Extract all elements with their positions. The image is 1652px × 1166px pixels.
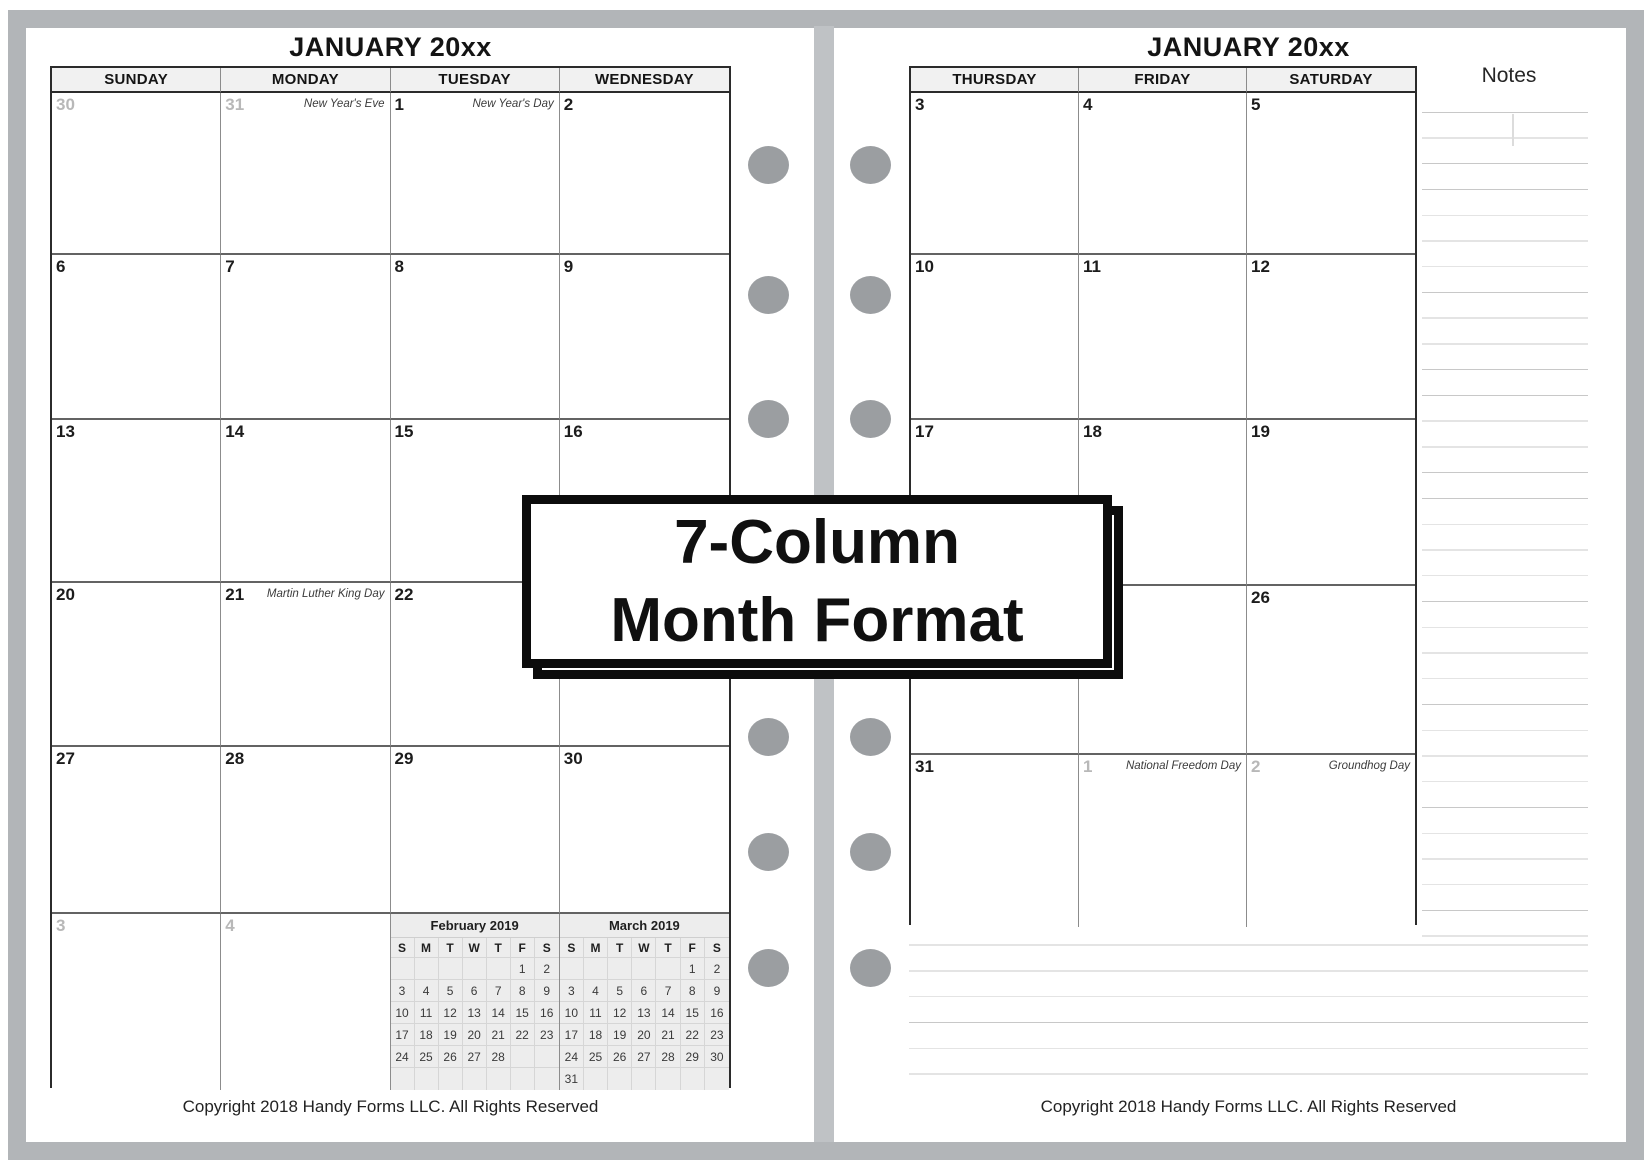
day-cell: 9 xyxy=(560,255,729,420)
mini-date: 21 xyxy=(656,1024,680,1046)
mini-date: 15 xyxy=(681,1002,705,1024)
banner-line-1: 7-Column xyxy=(674,504,960,582)
date-number: 10 xyxy=(915,257,934,277)
day-cell: 13 xyxy=(52,420,221,583)
day-cell: 31New Year's Eve xyxy=(221,93,390,255)
left-month-title: JANUARY 20xx xyxy=(50,32,731,63)
day-cell: 4 xyxy=(221,914,390,1090)
mini-date xyxy=(439,1068,463,1090)
date-number: 30 xyxy=(56,95,75,115)
mini-date: 24 xyxy=(391,1046,415,1068)
date-number: 19 xyxy=(1251,422,1270,442)
mini-date: 26 xyxy=(608,1046,632,1068)
day-header: TUESDAY xyxy=(391,68,560,93)
mini-date: 25 xyxy=(415,1046,439,1068)
date-number: 7 xyxy=(225,257,234,277)
binder-hole xyxy=(748,718,789,756)
notes-ruled-lines xyxy=(1422,87,1588,937)
day-cell: 8 xyxy=(391,255,560,420)
mini-day-header: S xyxy=(391,938,415,958)
mini-date: 11 xyxy=(415,1002,439,1024)
format-banner: 7-Column Month Format xyxy=(522,495,1112,668)
mini-date: 7 xyxy=(487,980,511,1002)
banner-line-2: Month Format xyxy=(610,582,1023,660)
mini-date xyxy=(511,1046,535,1068)
day-cell: 14 xyxy=(221,420,390,583)
date-number: 26 xyxy=(1251,588,1270,608)
day-cell: 3 xyxy=(52,914,221,1090)
mini-calendar-title: March 2019 xyxy=(560,914,729,938)
binder-hole xyxy=(850,400,891,438)
day-cell: 10 xyxy=(911,255,1079,420)
mini-date: 13 xyxy=(463,1002,487,1024)
date-number: 2 xyxy=(564,95,573,115)
day-cell: 7 xyxy=(221,255,390,420)
mini-date: 21 xyxy=(487,1024,511,1046)
day-header: MONDAY xyxy=(221,68,390,93)
mini-date xyxy=(415,958,439,980)
mini-date: 16 xyxy=(535,1002,559,1024)
mini-date: 14 xyxy=(487,1002,511,1024)
date-number: 18 xyxy=(1083,422,1102,442)
day-cell: 12 xyxy=(1247,255,1415,420)
date-number: 14 xyxy=(225,422,244,442)
mini-date: 18 xyxy=(584,1024,608,1046)
mini-date: 2 xyxy=(535,958,559,980)
date-number: 4 xyxy=(225,916,234,936)
date-number: 29 xyxy=(395,749,414,769)
day-cell: 11 xyxy=(1079,255,1247,420)
date-number: 16 xyxy=(564,422,583,442)
mini-date xyxy=(511,1068,535,1090)
mini-date: 1 xyxy=(681,958,705,980)
binder-hole xyxy=(850,146,891,184)
binder-hole xyxy=(748,400,789,438)
left-copyright: Copyright 2018 Handy Forms LLC. All Righ… xyxy=(50,1097,731,1117)
day-cell: 2 xyxy=(560,93,729,255)
binder-hole xyxy=(748,949,789,987)
day-cell: 1New Year's Day xyxy=(391,93,560,255)
mini-date xyxy=(632,958,656,980)
right-copyright: Copyright 2018 Handy Forms LLC. All Righ… xyxy=(909,1097,1588,1117)
mini-date: 3 xyxy=(560,980,584,1002)
day-cell: 30 xyxy=(560,747,729,914)
day-cell: 20 xyxy=(52,583,221,747)
mini-date: 3 xyxy=(391,980,415,1002)
mini-calendar: February 2019SMTWTFS12345678910111213141… xyxy=(391,914,559,1090)
day-cell: February 2019SMTWTFS12345678910111213141… xyxy=(391,914,560,1090)
mini-date xyxy=(560,958,584,980)
mini-date: 29 xyxy=(681,1046,705,1068)
date-number: 5 xyxy=(1251,95,1260,115)
day-cell: 21Martin Luther King Day xyxy=(221,583,390,747)
date-number: 31 xyxy=(915,757,934,777)
date-number: 1 xyxy=(1083,757,1092,777)
mini-date: 20 xyxy=(463,1024,487,1046)
mini-date: 7 xyxy=(656,980,680,1002)
holiday-label: Martin Luther King Day xyxy=(267,588,385,600)
mini-date: 19 xyxy=(608,1024,632,1046)
mini-date: 23 xyxy=(705,1024,729,1046)
bottom-ruled-lines xyxy=(909,920,1588,1078)
date-number: 3 xyxy=(56,916,65,936)
mini-date: 12 xyxy=(439,1002,463,1024)
day-cell: 28 xyxy=(221,747,390,914)
mini-date xyxy=(487,958,511,980)
date-number: 4 xyxy=(1083,95,1092,115)
notes-heading: Notes xyxy=(1424,64,1594,88)
date-number: 17 xyxy=(915,422,934,442)
holiday-label: National Freedom Day xyxy=(1126,760,1241,772)
mini-date: 28 xyxy=(487,1046,511,1068)
mini-date: 9 xyxy=(535,980,559,1002)
date-number: 20 xyxy=(56,585,75,605)
mini-date: 1 xyxy=(511,958,535,980)
date-number: 21 xyxy=(225,585,244,605)
mini-calendar: March 2019SMTWTFS12345678910111213141516… xyxy=(560,914,729,1090)
mini-date: 4 xyxy=(415,980,439,1002)
mini-date xyxy=(584,1068,608,1090)
mini-date xyxy=(656,1068,680,1090)
mini-date: 22 xyxy=(681,1024,705,1046)
mini-date: 5 xyxy=(439,980,463,1002)
date-number: 3 xyxy=(915,95,924,115)
mini-day-header: W xyxy=(463,938,487,958)
day-cell: 6 xyxy=(52,255,221,420)
mini-date: 18 xyxy=(415,1024,439,1046)
mini-date xyxy=(487,1068,511,1090)
mini-date: 23 xyxy=(535,1024,559,1046)
mini-date: 30 xyxy=(705,1046,729,1068)
mini-date: 4 xyxy=(584,980,608,1002)
date-number: 8 xyxy=(395,257,404,277)
mini-day-header: T xyxy=(608,938,632,958)
day-header: WEDNESDAY xyxy=(560,68,729,93)
day-cell: 30 xyxy=(52,93,221,255)
mini-day-header: S xyxy=(705,938,729,958)
mini-date: 10 xyxy=(560,1002,584,1024)
mini-date xyxy=(535,1068,559,1090)
day-header: THURSDAY xyxy=(911,68,1079,93)
holiday-label: Groundhog Day xyxy=(1329,760,1410,772)
day-cell: 1National Freedom Day xyxy=(1079,755,1247,927)
date-number: 6 xyxy=(56,257,65,277)
day-cell: 5 xyxy=(1247,93,1415,255)
mini-day-header: T xyxy=(487,938,511,958)
day-cell: 29 xyxy=(391,747,560,914)
mini-date: 20 xyxy=(632,1024,656,1046)
date-number: 28 xyxy=(225,749,244,769)
binder-hole xyxy=(850,949,891,987)
right-month-title: JANUARY 20xx xyxy=(909,32,1588,63)
mini-date xyxy=(391,1068,415,1090)
day-cell: 19 xyxy=(1247,420,1415,586)
date-number: 27 xyxy=(56,749,75,769)
mini-date xyxy=(705,1068,729,1090)
binder-hole xyxy=(748,833,789,871)
mini-date: 16 xyxy=(705,1002,729,1024)
mini-date: 10 xyxy=(391,1002,415,1024)
mini-date xyxy=(584,958,608,980)
mini-date xyxy=(463,958,487,980)
mini-date: 17 xyxy=(560,1024,584,1046)
mini-date: 25 xyxy=(584,1046,608,1068)
day-cell: 27 xyxy=(52,747,221,914)
mini-date xyxy=(535,1046,559,1068)
mini-date: 15 xyxy=(511,1002,535,1024)
mini-date xyxy=(439,958,463,980)
date-number: 9 xyxy=(564,257,573,277)
mini-date: 22 xyxy=(511,1024,535,1046)
date-number: 15 xyxy=(395,422,414,442)
mini-date: 31 xyxy=(560,1068,584,1090)
day-header: SATURDAY xyxy=(1247,68,1415,93)
date-number: 11 xyxy=(1083,257,1101,277)
day-cell: 2Groundhog Day xyxy=(1247,755,1415,927)
mini-date xyxy=(608,958,632,980)
mini-date: 27 xyxy=(463,1046,487,1068)
mini-day-header: M xyxy=(584,938,608,958)
mini-date: 6 xyxy=(463,980,487,1002)
mini-date: 26 xyxy=(439,1046,463,1068)
mini-date: 13 xyxy=(632,1002,656,1024)
mini-date xyxy=(681,1068,705,1090)
photo-artifact-mark xyxy=(1498,114,1514,146)
binder-hole xyxy=(850,833,891,871)
mini-date xyxy=(391,958,415,980)
mini-date: 8 xyxy=(511,980,535,1002)
date-number: 13 xyxy=(56,422,75,442)
day-cell: 31 xyxy=(911,755,1079,927)
date-number: 1 xyxy=(395,95,404,115)
mini-date: 12 xyxy=(608,1002,632,1024)
date-number: 12 xyxy=(1251,257,1270,277)
mini-day-header: T xyxy=(439,938,463,958)
binder-hole xyxy=(850,718,891,756)
mini-date xyxy=(463,1068,487,1090)
planner-spread-photo: JANUARY 20xx SUNDAYMONDAYTUESDAYWEDNESDA… xyxy=(0,0,1652,1166)
binder-hole xyxy=(748,276,789,314)
day-header: SUNDAY xyxy=(52,68,221,93)
mini-calendar-grid: SMTWTFS123456789101112131415161718192021… xyxy=(560,938,729,1090)
mini-date: 9 xyxy=(705,980,729,1002)
mini-date: 17 xyxy=(391,1024,415,1046)
mini-date xyxy=(415,1068,439,1090)
date-number: 31 xyxy=(225,95,244,115)
mini-date: 27 xyxy=(632,1046,656,1068)
mini-date: 11 xyxy=(584,1002,608,1024)
mini-date xyxy=(608,1068,632,1090)
mini-date: 28 xyxy=(656,1046,680,1068)
date-number: 22 xyxy=(395,585,414,605)
mini-day-header: S xyxy=(535,938,559,958)
mini-day-header: W xyxy=(632,938,656,958)
day-cell: 4 xyxy=(1079,93,1247,255)
mini-date xyxy=(632,1068,656,1090)
holiday-label: New Year's Day xyxy=(473,98,554,110)
holiday-label: New Year's Eve xyxy=(304,98,385,110)
date-number: 2 xyxy=(1251,757,1260,777)
binder-hole xyxy=(850,276,891,314)
day-header: FRIDAY xyxy=(1079,68,1247,93)
mini-day-header: S xyxy=(560,938,584,958)
mini-day-header: M xyxy=(415,938,439,958)
mini-date: 19 xyxy=(439,1024,463,1046)
date-number: 30 xyxy=(564,749,583,769)
binder-hole xyxy=(748,146,789,184)
mini-date: 5 xyxy=(608,980,632,1002)
day-cell: 3 xyxy=(911,93,1079,255)
mini-date: 24 xyxy=(560,1046,584,1068)
mini-date: 14 xyxy=(656,1002,680,1024)
day-cell: 26 xyxy=(1247,586,1415,755)
mini-day-header: T xyxy=(656,938,680,958)
mini-day-header: F xyxy=(681,938,705,958)
mini-date: 6 xyxy=(632,980,656,1002)
mini-date: 2 xyxy=(705,958,729,980)
mini-date: 8 xyxy=(681,980,705,1002)
mini-day-header: F xyxy=(511,938,535,958)
day-cell: March 2019SMTWTFS12345678910111213141516… xyxy=(560,914,729,1090)
mini-date xyxy=(656,958,680,980)
mini-calendar-grid: SMTWTFS123456789101112131415161718192021… xyxy=(391,938,559,1090)
mini-calendar-title: February 2019 xyxy=(391,914,559,938)
